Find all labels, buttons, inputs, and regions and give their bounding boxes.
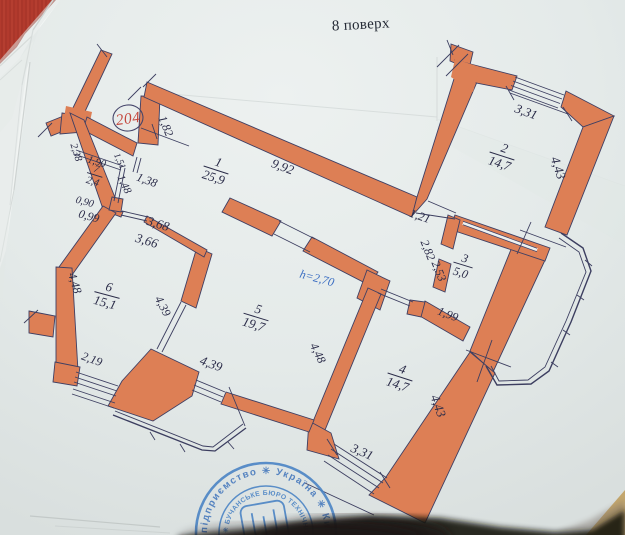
svg-text:✳ БУЧАНСЬКЕ БЮРО ТЕХНІЧНОЇ ІНВ: ✳ БУЧАНСЬКЕ БЮРО ТЕХНІЧНОЇ ІНВЕН bbox=[0, 0, 309, 534]
svg-text:підприємство ✳ Україна ✳ Київ: підприємство ✳ Україна ✳ Київ bbox=[0, 0, 333, 533]
